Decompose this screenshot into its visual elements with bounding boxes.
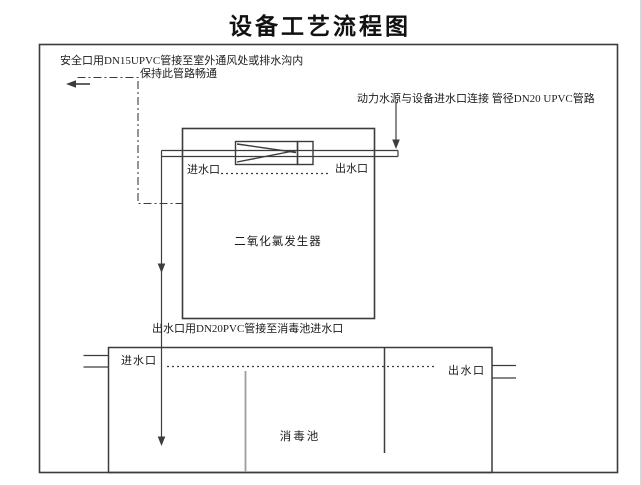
pool-inlet-stubs — [84, 356, 109, 368]
safety-vent-arrow-icon — [66, 80, 90, 88]
pool-inlet-label: 进水口 — [121, 355, 157, 368]
pool-outlet-label: 出水口 — [448, 365, 486, 378]
power-supply-note: 动力水源与设备进水口连接 管径DN20 UPVC管路 — [357, 93, 595, 106]
process-flow-diagram: 设备工艺流程图 — [0, 0, 641, 486]
flow-direction-arrow-icon — [158, 264, 166, 274]
outlet-pipe-note: 出水口用DN20PVC管接至消毒池进水口 — [152, 323, 343, 336]
ejector-venturi — [236, 142, 314, 165]
power-water-drop-arrow — [392, 102, 400, 149]
outer-frame — [40, 45, 618, 473]
generator-inlet-label: 进水口 — [187, 164, 220, 177]
safety-note-line2: 保持此管路畅通 — [140, 68, 217, 81]
safety-note-line1: 安全口用DN15UPVC管接至室外通风处或排水沟内 — [60, 55, 303, 68]
safety-vent-dashdot-line — [78, 78, 183, 204]
pool-outlet-stubs — [492, 366, 516, 379]
disinfection-pool-box — [109, 348, 493, 473]
generator-outlet-label: 出水口 — [335, 163, 368, 176]
generator-name: 二氧化氯发生器 — [182, 236, 374, 249]
pool-name: 消毒池 — [108, 431, 492, 444]
outlet-drop-pipe — [158, 151, 166, 447]
